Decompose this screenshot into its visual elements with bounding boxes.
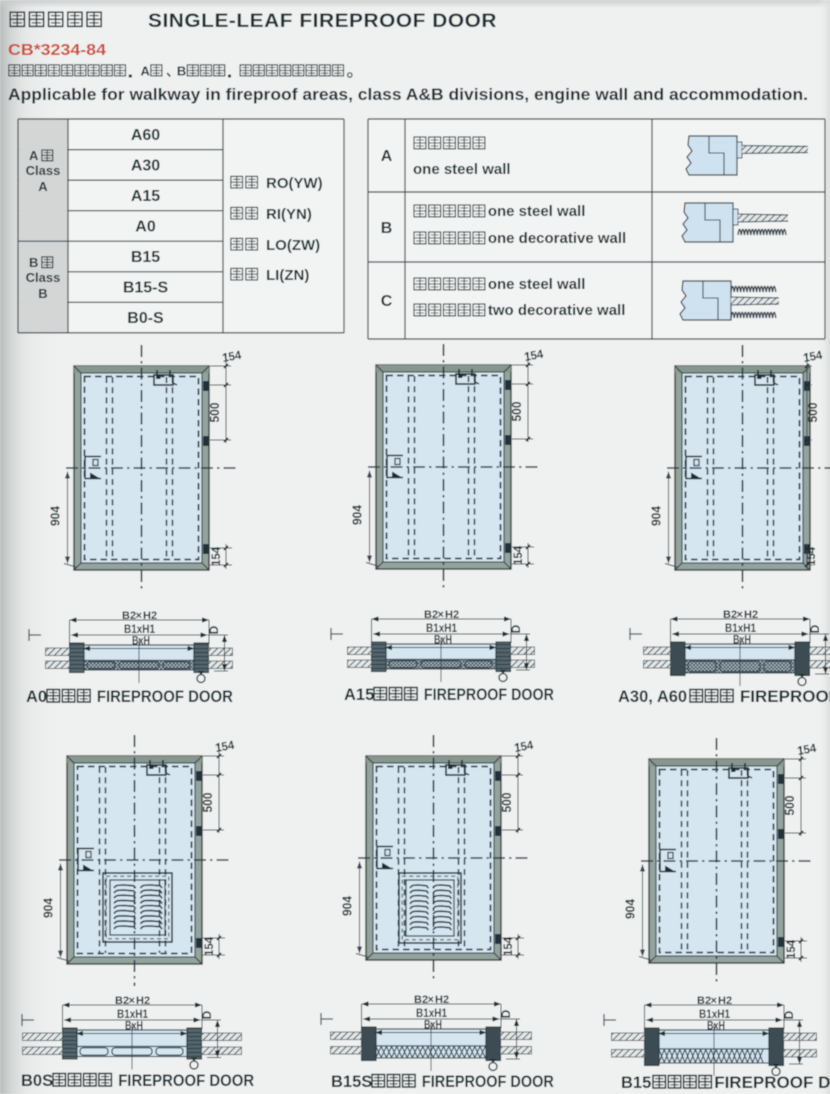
svg-text:A: A bbox=[38, 179, 48, 194]
svg-text:FIREPROOF DOOR: FIREPROOF DOOR bbox=[118, 1071, 254, 1090]
svg-text:500: 500 bbox=[208, 402, 222, 422]
svg-text:LO(ZW): LO(ZW) bbox=[266, 237, 320, 254]
svg-text:904: 904 bbox=[624, 899, 638, 919]
svg-text:Class: Class bbox=[26, 163, 61, 178]
svg-text:A: A bbox=[381, 148, 393, 165]
svg-text:154: 154 bbox=[511, 546, 525, 565]
svg-text:CB*3234-84: CB*3234-84 bbox=[8, 42, 106, 59]
svg-text:B1xH1: B1xH1 bbox=[124, 622, 155, 636]
svg-text:904: 904 bbox=[42, 898, 56, 918]
svg-text:FIREPROOF DOOR: FIREPROOF DOOR bbox=[97, 687, 233, 706]
svg-text:B: B bbox=[177, 64, 186, 79]
svg-text:A: A bbox=[29, 148, 39, 163]
svg-text:two decorative wall: two decorative wall bbox=[488, 302, 626, 319]
svg-text:B15: B15 bbox=[621, 1074, 651, 1092]
svg-text:D: D bbox=[782, 1010, 796, 1019]
svg-text:D: D bbox=[200, 1010, 214, 1019]
svg-text:FIREPROOF DOOR: FIREPROOF DOOR bbox=[740, 687, 830, 706]
svg-text:500: 500 bbox=[500, 792, 514, 812]
svg-text:BxH: BxH bbox=[434, 635, 452, 647]
svg-text:904: 904 bbox=[650, 506, 664, 526]
svg-text:B15S: B15S bbox=[331, 1073, 372, 1091]
svg-text:500: 500 bbox=[783, 795, 797, 815]
svg-text:B1xH1: B1xH1 bbox=[426, 621, 457, 635]
svg-text:FIREPROOF DOOR: FIREPROOF DOOR bbox=[422, 1072, 554, 1091]
svg-text:BxH: BxH bbox=[424, 1020, 442, 1032]
svg-text:500: 500 bbox=[201, 792, 215, 812]
svg-text:BxH: BxH bbox=[132, 636, 150, 648]
svg-text:154: 154 bbox=[784, 940, 798, 959]
svg-text:one decorative wall: one decorative wall bbox=[488, 230, 626, 247]
svg-text:A0: A0 bbox=[26, 688, 47, 706]
svg-text:B: B bbox=[381, 220, 393, 237]
svg-text:904: 904 bbox=[341, 896, 355, 916]
svg-text:SINGLE-LEAF FIREPROOF DOOR: SINGLE-LEAF FIREPROOF DOOR bbox=[148, 10, 497, 32]
svg-text:154: 154 bbox=[209, 547, 223, 566]
svg-text:Applicable for walkway in fire: Applicable for walkway in fireproof area… bbox=[8, 86, 808, 104]
svg-text:A30: A30 bbox=[131, 157, 160, 174]
svg-text:B0-S: B0-S bbox=[127, 310, 164, 327]
svg-text:D: D bbox=[499, 1009, 513, 1018]
svg-text:154: 154 bbox=[501, 937, 515, 956]
svg-text:B: B bbox=[38, 286, 47, 301]
svg-text:B1xH1: B1xH1 bbox=[416, 1006, 447, 1020]
svg-text:B15-S: B15-S bbox=[123, 280, 169, 297]
svg-text:D: D bbox=[509, 624, 523, 633]
svg-text:FIREPROOF DOOR: FIREPROOF DOOR bbox=[714, 1073, 830, 1092]
svg-text:RI(YN): RI(YN) bbox=[266, 206, 312, 223]
svg-text:904: 904 bbox=[351, 505, 365, 525]
svg-text:A15: A15 bbox=[344, 686, 374, 704]
svg-text:BxH: BxH bbox=[125, 1021, 143, 1033]
svg-text:D: D bbox=[207, 625, 221, 634]
svg-text:BxH: BxH bbox=[707, 1021, 725, 1033]
svg-text:500: 500 bbox=[806, 402, 820, 422]
svg-text:one steel wall: one steel wall bbox=[413, 161, 511, 178]
svg-text:B1xH1: B1xH1 bbox=[117, 1007, 148, 1021]
svg-text:BxH: BxH bbox=[733, 635, 751, 647]
svg-text:one steel wall: one steel wall bbox=[488, 203, 586, 220]
svg-text:B15: B15 bbox=[131, 249, 160, 266]
svg-text:RO(YW): RO(YW) bbox=[266, 175, 323, 192]
svg-text:B1xH1: B1xH1 bbox=[699, 1007, 730, 1021]
svg-text:C: C bbox=[381, 293, 393, 310]
svg-text:A15: A15 bbox=[131, 188, 160, 205]
svg-text:A60: A60 bbox=[131, 127, 160, 144]
svg-text:A0: A0 bbox=[135, 218, 156, 235]
svg-text:Class: Class bbox=[26, 270, 61, 285]
svg-text:500: 500 bbox=[510, 401, 524, 421]
svg-text:B0S: B0S bbox=[21, 1072, 53, 1090]
svg-text:154: 154 bbox=[202, 937, 216, 956]
svg-text:FIREPROOF DOOR: FIREPROOF DOOR bbox=[424, 685, 554, 704]
svg-text:B1xH1: B1xH1 bbox=[725, 621, 756, 635]
svg-text:A30, A60: A30, A60 bbox=[618, 688, 687, 706]
svg-text:one steel wall: one steel wall bbox=[488, 276, 586, 293]
svg-text:LI(ZN): LI(ZN) bbox=[266, 267, 309, 284]
svg-text:A: A bbox=[141, 64, 151, 79]
svg-text:B: B bbox=[29, 255, 38, 270]
svg-text:D: D bbox=[808, 624, 822, 633]
svg-text:904: 904 bbox=[49, 506, 63, 526]
svg-text:154: 154 bbox=[804, 547, 818, 566]
